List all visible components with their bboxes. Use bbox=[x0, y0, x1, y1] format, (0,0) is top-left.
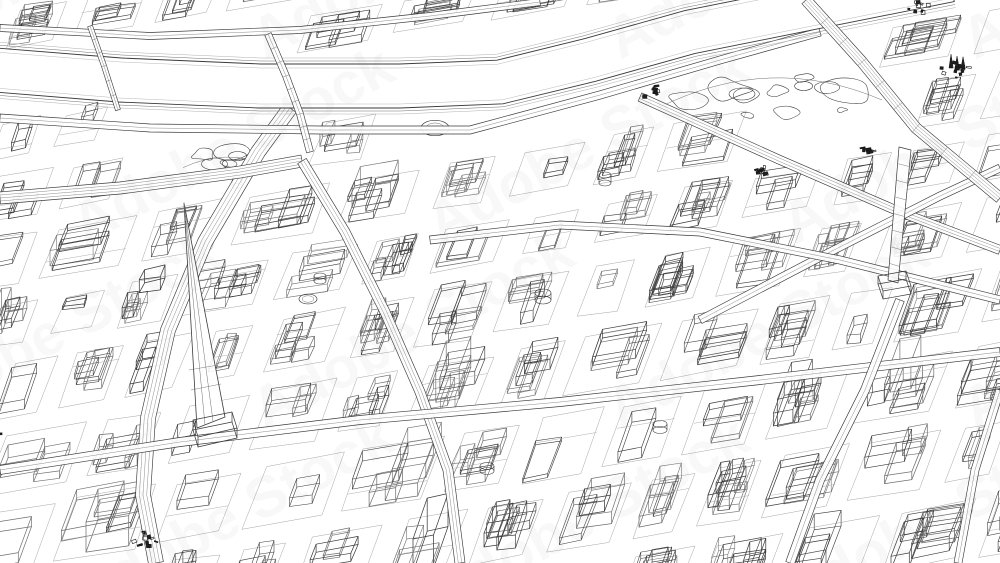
river-layer bbox=[0, 0, 956, 114]
stock-preview-image: Adobe StockAdobe StockAdobe StockAdobe S… bbox=[0, 0, 1000, 563]
wireframe-city-drawing: Adobe StockAdobe StockAdobe StockAdobe S… bbox=[0, 0, 1000, 563]
svg-text:Adobe Stock: Adobe Stock bbox=[61, 402, 405, 563]
